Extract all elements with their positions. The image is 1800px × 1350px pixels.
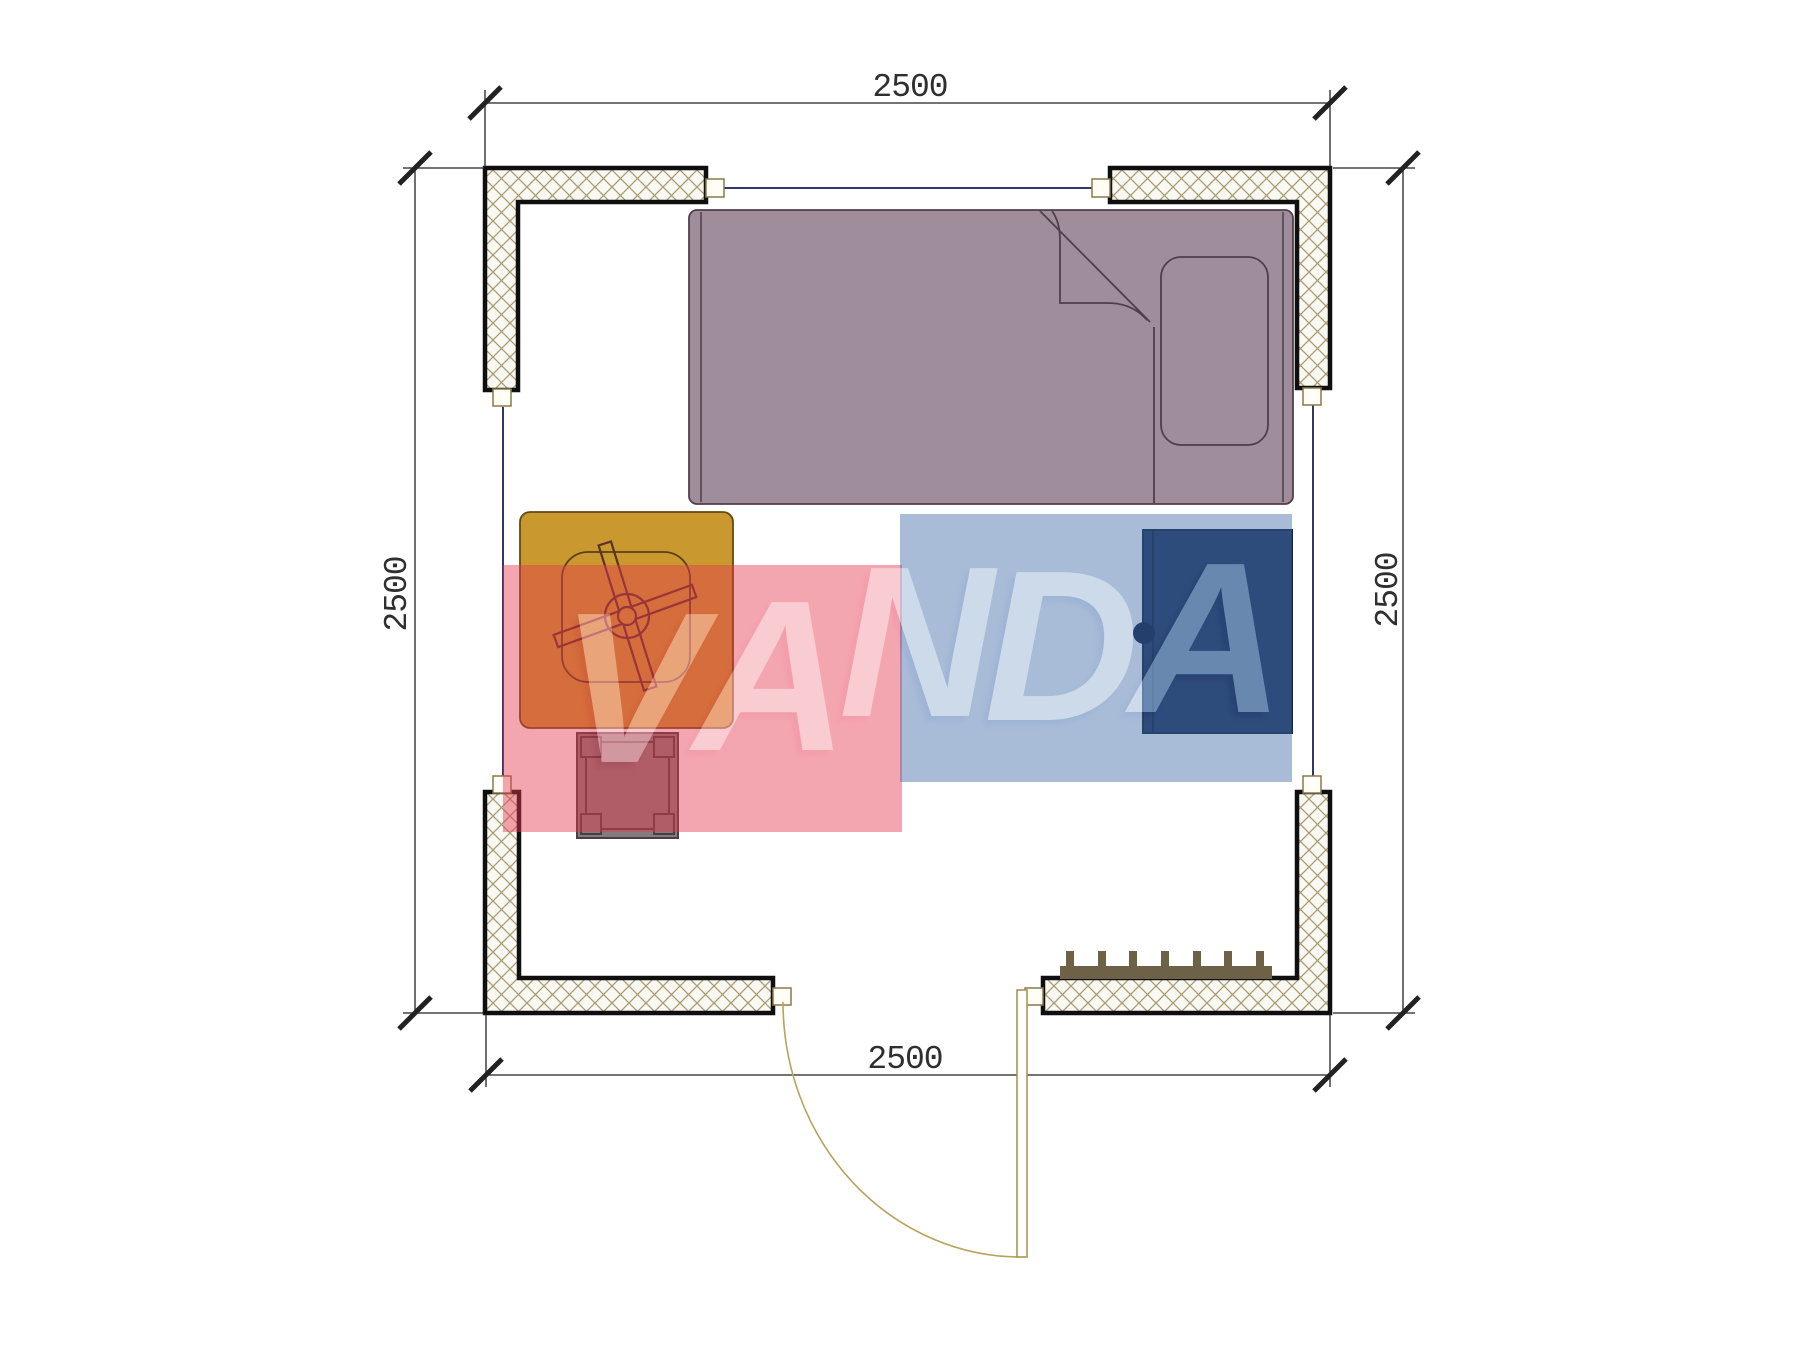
bed [689,210,1293,504]
watermark-letter: A [1129,530,1274,745]
connector [1303,388,1321,405]
bed-pillow [1161,257,1268,445]
dimension-bottom: 2500 [470,1014,1346,1091]
door-leaf [1017,990,1027,1257]
dimension-label-left: 2500 [379,556,416,631]
dimension-label-top: 2500 [872,69,947,106]
radiator-bar [1060,966,1272,979]
connector [706,179,724,197]
watermark-letter: V [560,580,693,795]
door [783,990,1027,1257]
watermark-text: V A N D A [560,538,1275,753]
dimension-top: 2500 [469,69,1346,167]
floor-plan-page: 2500 2500 2500 2500 [0,0,1800,1350]
radiator-fin [1098,951,1106,967]
watermark-letter: D [984,538,1129,753]
wall-top-left [485,168,706,390]
radiator-fin [1066,951,1074,967]
radiator-fin [1193,951,1201,967]
radiator-fin [1129,951,1137,967]
dimension-right: 2500 [1333,152,1419,1029]
radiator-fin [1224,951,1232,967]
watermark-letter: A [693,568,838,783]
radiator [1060,951,1272,979]
dimension-label-right: 2500 [1370,552,1407,627]
watermark-letter: N [839,534,984,749]
wall-bottom-right [1043,792,1330,1013]
connector [1303,776,1321,793]
connector [1092,179,1110,197]
radiator-fin [1256,951,1264,967]
connector [493,389,511,406]
dimension-left: 2500 [379,152,484,1029]
dimension-label-bottom: 2500 [867,1041,942,1078]
connector [773,988,791,1005]
radiator-fin [1161,951,1169,967]
